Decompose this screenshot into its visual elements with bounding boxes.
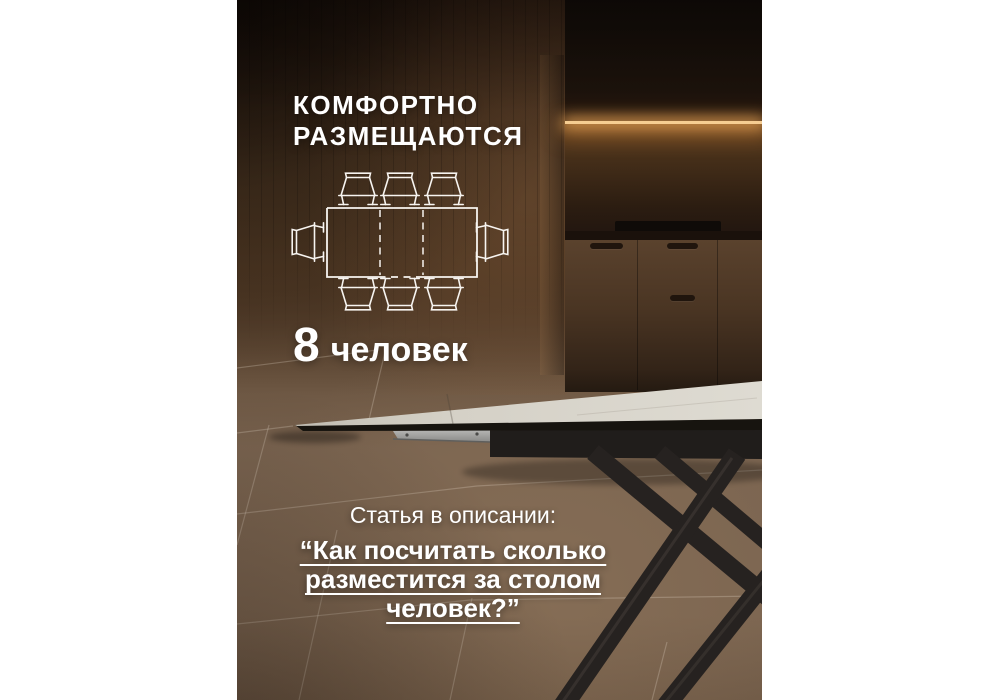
table-outline xyxy=(327,208,477,277)
footer-quote: “Как посчитать сколько разместится за ст… xyxy=(237,536,669,623)
tabletop-surface xyxy=(295,381,762,426)
product-infographic-poster: КОМФОРТНО РАЗМЕЩАЮТСЯ xyxy=(237,0,762,700)
footer-quote-line3: человек?” xyxy=(237,594,669,623)
table-apron xyxy=(490,426,762,459)
headline: КОМФОРТНО РАЗМЕЩАЮТСЯ xyxy=(293,90,523,152)
capacity-label: человек xyxy=(331,331,468,370)
chair-icon xyxy=(339,279,377,310)
capacity-number: 8 xyxy=(293,318,320,373)
chair-icon xyxy=(425,279,463,310)
chair-icon xyxy=(381,173,419,204)
footer-intro: Статья в описании: xyxy=(237,502,669,529)
chair-icon xyxy=(292,223,323,261)
footer-note: Статья в описании: “Как посчитать скольк… xyxy=(237,502,669,623)
headline-line2: РАЗМЕЩАЮТСЯ xyxy=(293,121,523,152)
chair-icon xyxy=(477,223,508,261)
chair-icon xyxy=(381,279,419,310)
footer-quote-line1: “Как посчитать сколько xyxy=(237,536,669,565)
tabletop xyxy=(295,381,762,431)
footer-quote-line2: разместится за столом xyxy=(237,565,669,594)
capacity: 8 человек xyxy=(293,318,468,373)
headline-line1: КОМФОРТНО xyxy=(293,90,523,121)
seating-diagram xyxy=(289,170,511,312)
chair-icon xyxy=(425,173,463,204)
chair-icon xyxy=(339,173,377,204)
tabletop-tip-shadow xyxy=(269,431,361,443)
